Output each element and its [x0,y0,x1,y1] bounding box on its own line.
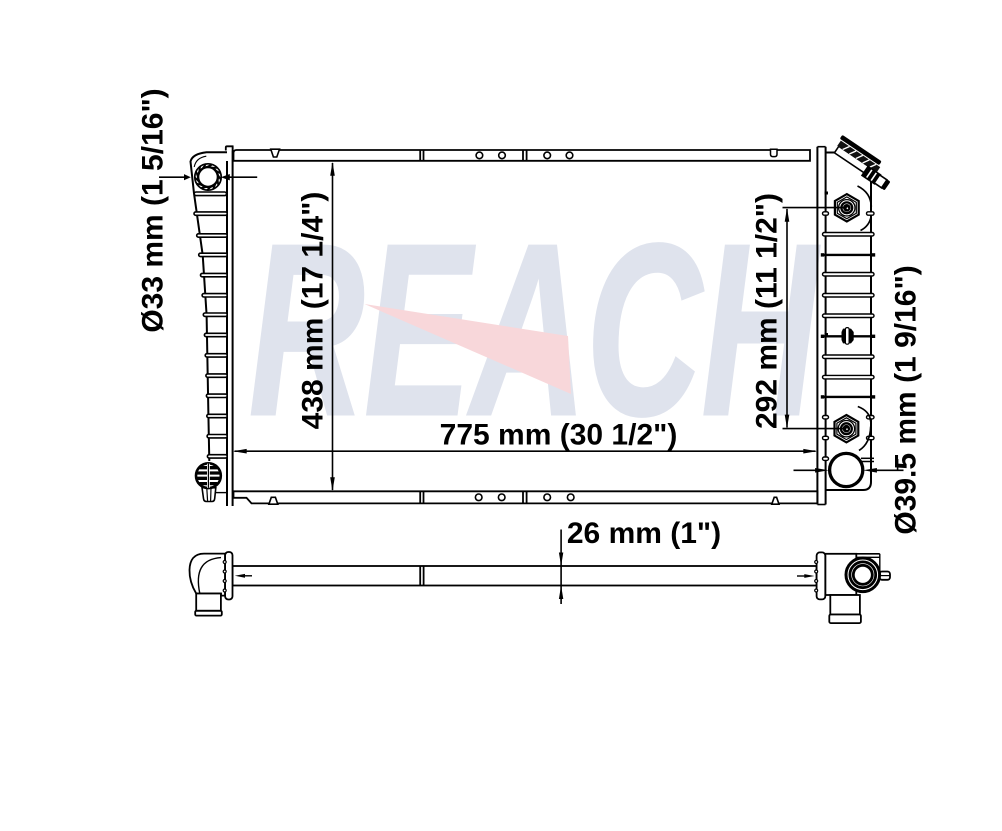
svg-text:Ø33 mm (1 5/16"): Ø33 mm (1 5/16") [137,88,170,332]
svg-text:775 mm (30 1/2"): 775 mm (30 1/2") [440,418,678,451]
svg-text:Ø39.5 mm (1 9/16"): Ø39.5 mm (1 9/16") [890,265,923,534]
svg-text:438 mm (17 1/4"): 438 mm (17 1/4") [297,192,330,430]
svg-text:26 mm (1"): 26 mm (1") [567,517,721,550]
svg-text:292 mm (11 1/2"): 292 mm (11 1/2") [751,193,784,429]
